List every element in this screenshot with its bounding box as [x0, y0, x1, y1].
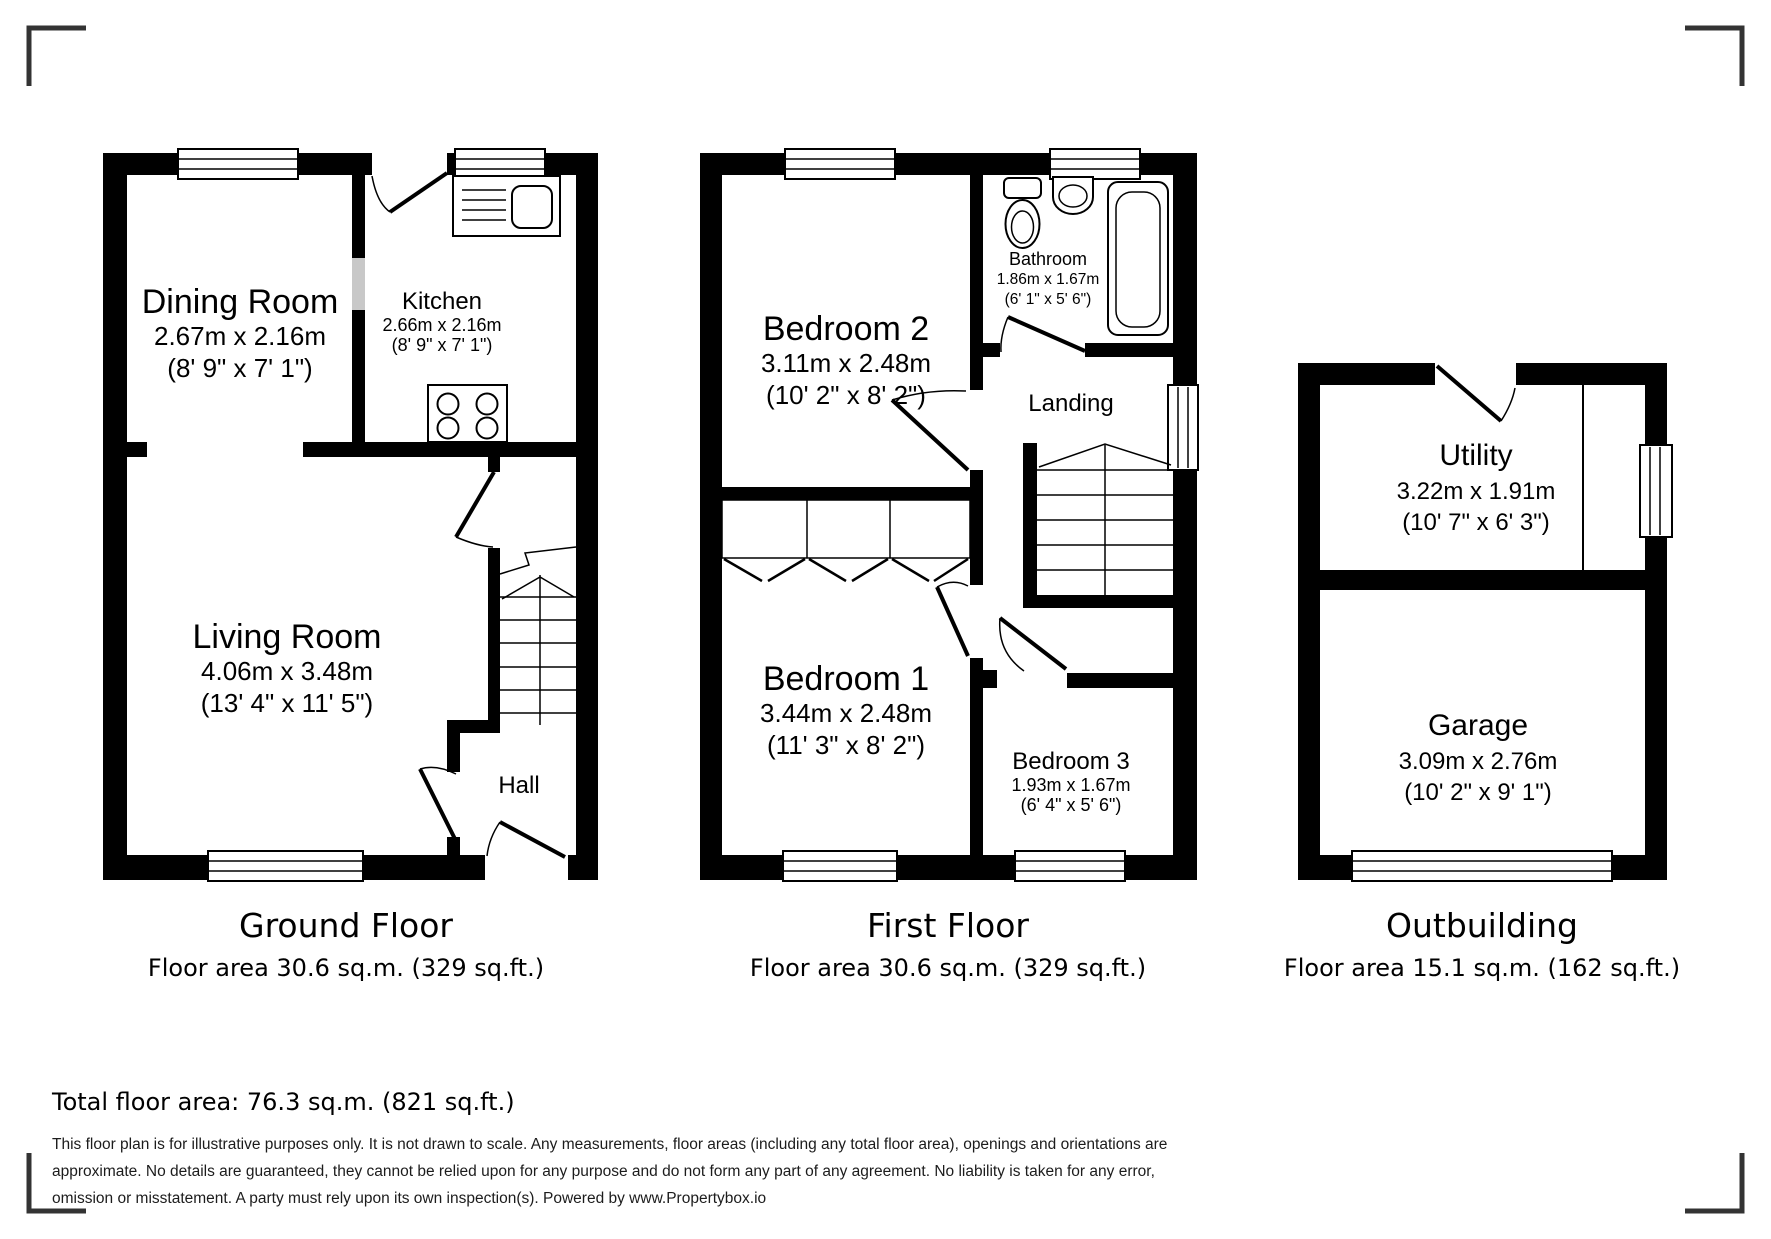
room-name: Bedroom 1: [760, 662, 932, 697]
corner-mark-top-right: [1685, 28, 1742, 86]
front-door-icon: [487, 822, 565, 857]
room-label-landing: Landing: [1028, 390, 1113, 417]
corner-mark-top-left: [29, 28, 86, 86]
back-door-opening: [372, 152, 447, 176]
bathtub-icon: [1108, 182, 1168, 335]
corner-mark-bottom-right: [1685, 1153, 1742, 1211]
living-room-door-icon: [456, 472, 494, 547]
floor-title: Ground Floor: [148, 906, 544, 946]
floor-label-outbuilding: Outbuilding Floor area 15.1 sq.m. (162 s…: [1284, 906, 1680, 983]
floor-label-ground: Ground Floor Floor area 30.6 sq.m. (329 …: [148, 906, 544, 983]
room-dim-imperial: (13' 4" x 11' 5"): [193, 687, 382, 719]
utility-window: [1640, 445, 1672, 537]
room-name: Living Room: [193, 620, 382, 655]
toilet-icon: [1004, 178, 1041, 248]
disclaimer: This floor plan is for illustrative purp…: [52, 1131, 1167, 1212]
total-floor-area: Total floor area: 76.3 sq.m. (821 sq.ft.…: [52, 1088, 515, 1116]
floor-title: First Floor: [750, 906, 1146, 946]
bathroom-door-icon: [1001, 317, 1085, 352]
disclaimer-line: omission or misstatement. A party must r…: [52, 1185, 1167, 1212]
ground-floor-walls: [103, 153, 598, 880]
room-dim-metric: 3.22m x 1.91m: [1397, 476, 1556, 507]
room-dim-imperial: (6' 4" x 5' 6"): [1011, 795, 1130, 815]
room-dim-imperial: (8' 9" x 7' 1"): [382, 335, 501, 355]
ground-floor-doors: [372, 173, 565, 857]
hall-door-icon: [420, 767, 456, 839]
room-dim-metric: 1.93m x 1.67m: [1011, 775, 1130, 795]
room-label-living: Living Room 4.06m x 3.48m (13' 4" x 11' …: [193, 620, 382, 719]
room-dim-imperial: (10' 2" x 8' 2"): [761, 379, 931, 411]
ground-floor-stairs-icon: [500, 547, 576, 725]
room-dim-metric: 4.06m x 3.48m: [193, 655, 382, 687]
room-name: Bathroom: [997, 248, 1100, 270]
room-name: Dining Room: [142, 285, 339, 320]
front-door-opening: [485, 854, 568, 881]
floorplan-page: Dining Room 2.67m x 2.16m (8' 9" x 7' 1"…: [0, 0, 1771, 1239]
disclaimer-line: approximate. No details are guaranteed, …: [52, 1158, 1167, 1185]
floor-area: Floor area 30.6 sq.m. (329 sq.ft.): [750, 953, 1146, 983]
room-label-bathroom: Bathroom 1.86m x 1.67m (6' 1" x 5' 6"): [997, 248, 1100, 309]
kitchen-window: [455, 149, 545, 179]
room-dim-imperial: (8' 9" x 7' 1"): [142, 352, 339, 384]
room-label-bedroom2: Bedroom 2 3.11m x 2.48m (10' 2" x 8' 2"): [761, 312, 931, 411]
room-dim-metric: 3.44m x 2.48m: [760, 697, 932, 729]
room-dim-imperial: (6' 1" x 5' 6"): [997, 290, 1100, 310]
room-dim-imperial: (10' 7" x 6' 3"): [1397, 507, 1556, 538]
room-dim-metric: 2.66m x 2.16m: [382, 315, 501, 335]
room-name: Utility: [1397, 436, 1556, 476]
room-name: Kitchen: [382, 288, 501, 315]
room-name: Hall: [498, 772, 539, 799]
room-label-utility: Utility 3.22m x 1.91m (10' 7" x 6' 3"): [1397, 436, 1556, 538]
floor-area: Floor area 30.6 sq.m. (329 sq.ft.): [148, 953, 544, 983]
wardrobe-icon: [722, 500, 970, 581]
dining-window: [178, 149, 298, 179]
floor-title: Outbuilding: [1284, 906, 1680, 946]
bedroom1-door-opening: [970, 585, 983, 658]
basin-icon: [1053, 177, 1093, 214]
back-door-icon: [372, 173, 447, 212]
room-label-bedroom3: Bedroom 3 1.93m x 1.67m (6' 4" x 5' 6"): [1011, 748, 1130, 815]
bedroom3-door-icon: [1000, 618, 1066, 671]
room-label-garage: Garage 3.09m x 2.76m (10' 2" x 9' 1"): [1399, 706, 1558, 808]
garage-door: [1352, 851, 1612, 881]
floor-area: Floor area 15.1 sq.m. (162 sq.ft.): [1284, 953, 1680, 983]
room-dim-imperial: (11' 3" x 8' 2"): [760, 729, 932, 761]
room-label-bedroom1: Bedroom 1 3.44m x 2.48m (11' 3" x 8' 2"): [760, 662, 932, 761]
disclaimer-line: This floor plan is for illustrative purp…: [52, 1131, 1167, 1158]
living-room-window: [208, 851, 363, 881]
room-dim-metric: 1.86m x 1.67m: [997, 270, 1100, 290]
room-label-hall: Hall: [498, 772, 539, 799]
landing-window: [1168, 385, 1198, 470]
room-dim-imperial: (10' 2" x 9' 1"): [1399, 777, 1558, 808]
room-name: Landing: [1028, 390, 1113, 417]
room-name: Bedroom 2: [761, 312, 931, 347]
bedroom1-window: [783, 851, 897, 881]
room-label-dining: Dining Room 2.67m x 2.16m (8' 9" x 7' 1"…: [142, 285, 339, 384]
room-dim-metric: 3.11m x 2.48m: [761, 347, 931, 379]
bedroom2-door-opening: [970, 390, 983, 470]
room-name: Garage: [1399, 706, 1558, 746]
bedroom1-door-icon: [937, 582, 968, 656]
first-floor-stairs-icon: [1037, 444, 1173, 595]
bathroom-window: [1050, 149, 1140, 179]
sink-icon: [453, 176, 560, 236]
bedroom2-window: [785, 149, 895, 179]
bedroom3-window: [1015, 851, 1125, 881]
room-dim-metric: 2.67m x 2.16m: [142, 320, 339, 352]
room-label-kitchen: Kitchen 2.66m x 2.16m (8' 9" x 7' 1"): [382, 288, 501, 355]
kitchen-wall-opening: [352, 258, 365, 310]
room-dim-metric: 3.09m x 2.76m: [1399, 746, 1558, 777]
room-name: Bedroom 3: [1011, 748, 1130, 775]
stove-icon: [428, 385, 507, 442]
floor-label-first: First Floor Floor area 30.6 sq.m. (329 s…: [750, 906, 1146, 983]
